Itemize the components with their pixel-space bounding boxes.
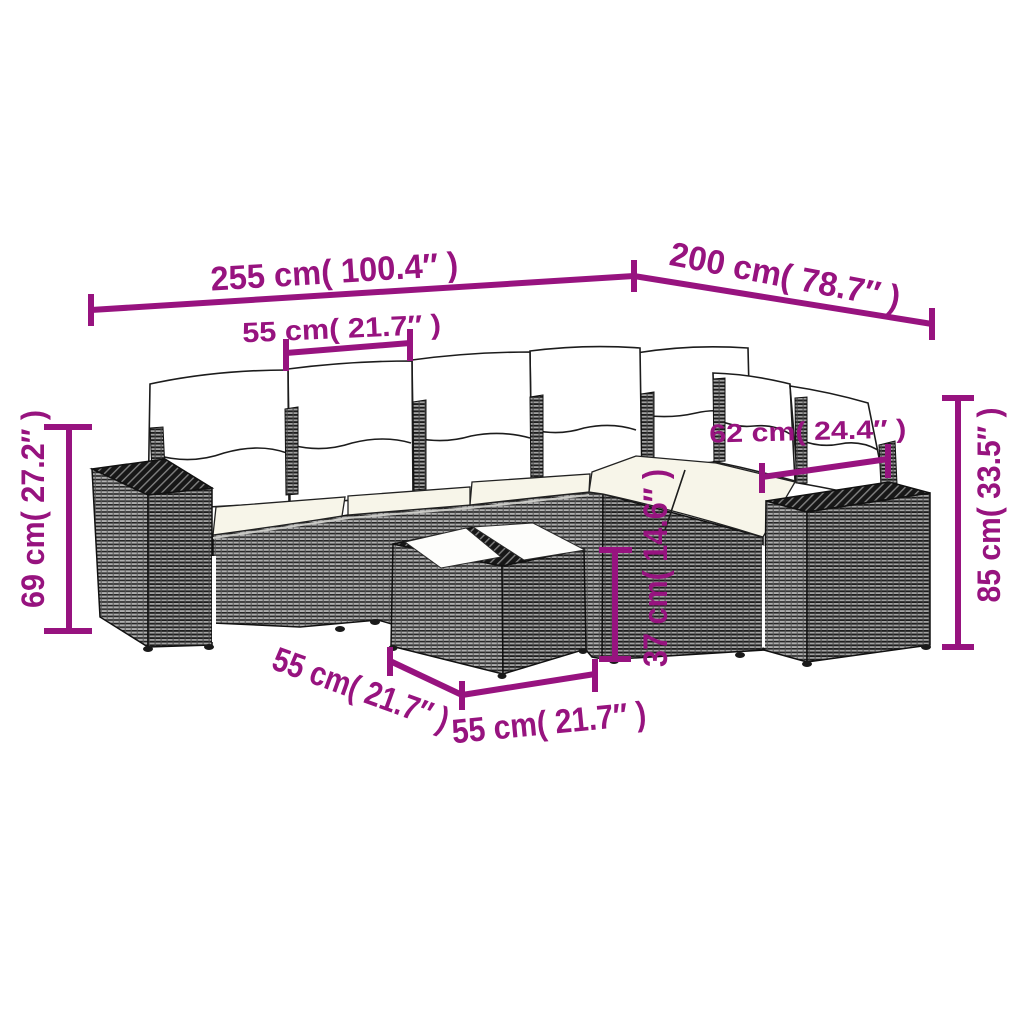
svg-text:69 cm( 27.2″ ): 69 cm( 27.2″ ) [15, 410, 51, 608]
svg-text:37 cm( 14.6″ ): 37 cm( 14.6″ ) [637, 469, 675, 667]
svg-text:62 cm( 24.4″ ): 62 cm( 24.4″ ) [709, 413, 907, 448]
svg-text:85 cm( 33.5″ ): 85 cm( 33.5″ ) [971, 408, 1007, 603]
